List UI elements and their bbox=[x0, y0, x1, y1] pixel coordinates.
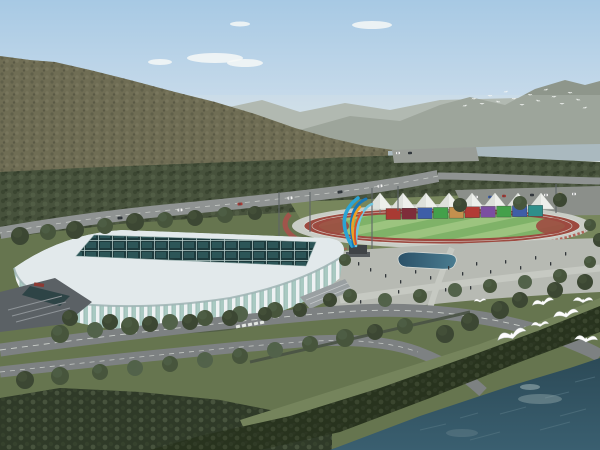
scene-svg bbox=[0, 0, 600, 450]
reflecting-pool bbox=[398, 252, 456, 269]
rendering-image bbox=[0, 0, 600, 450]
